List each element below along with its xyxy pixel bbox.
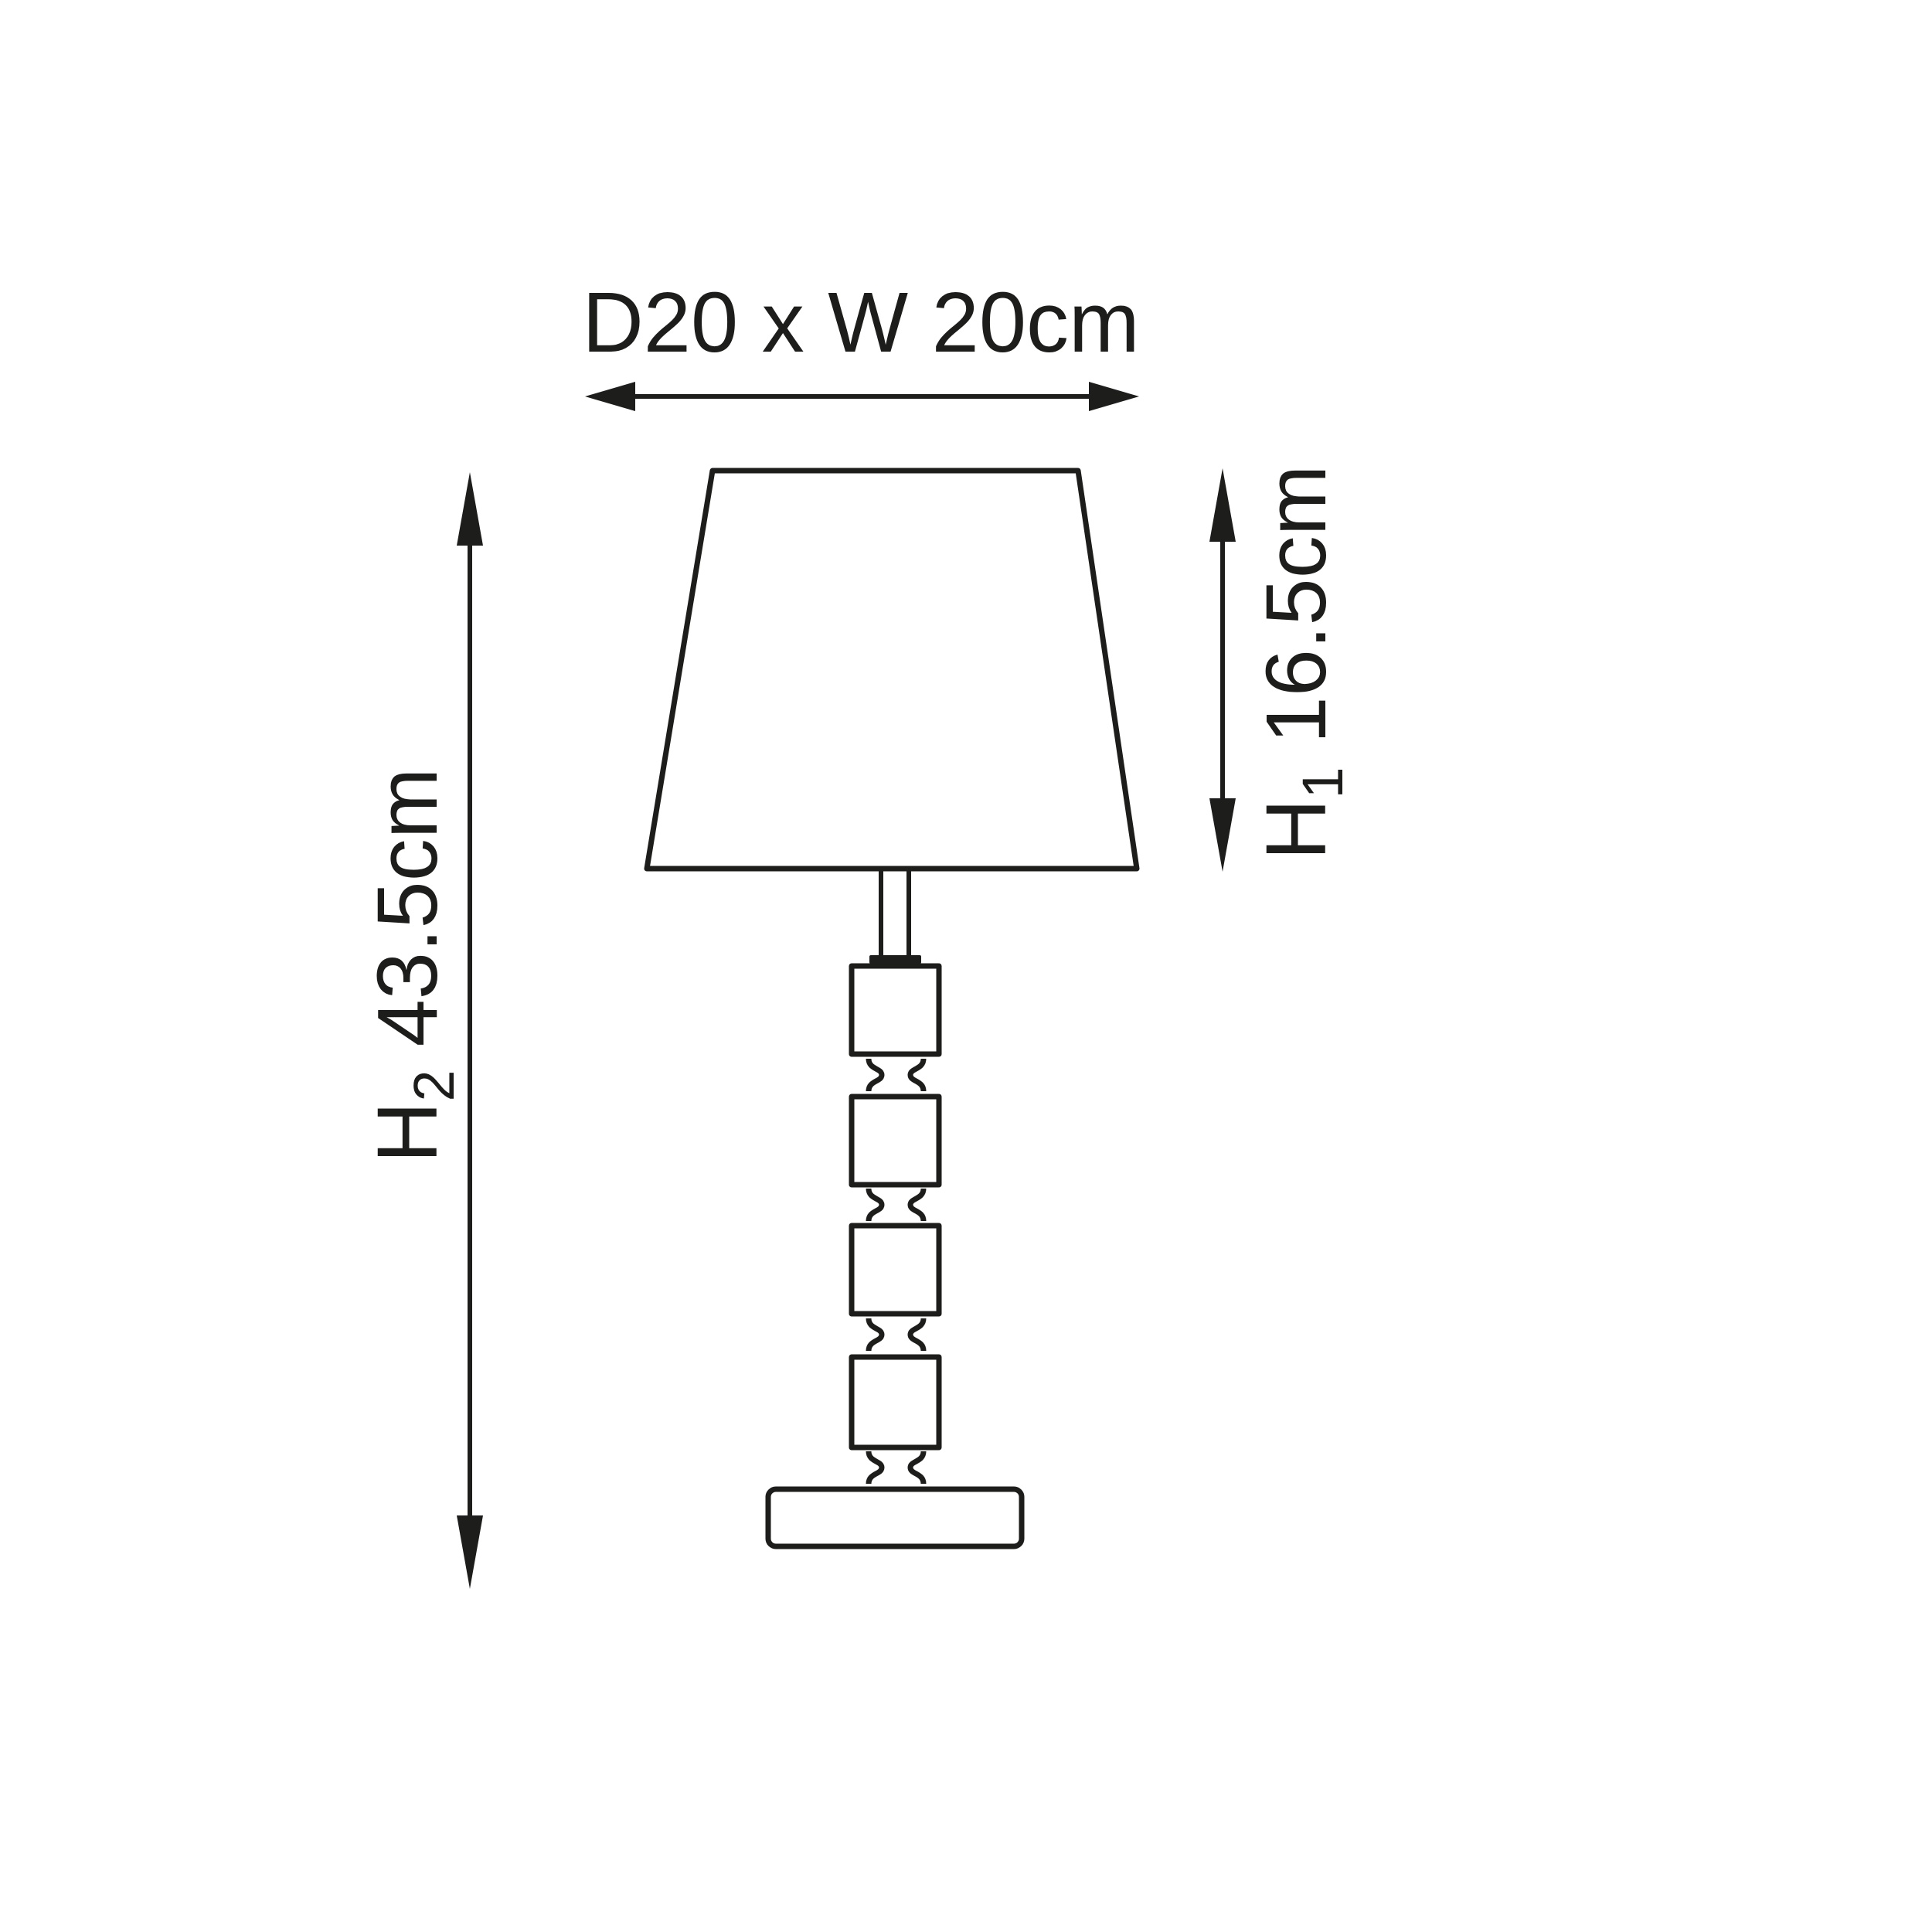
cube-connector-3 [869, 1318, 923, 1351]
cube-connector-2 [869, 1189, 923, 1221]
shade-height-subscript: 1 [1291, 767, 1355, 798]
total-height-label: H243.5cm [360, 768, 466, 1163]
glass-cube-2 [852, 1097, 939, 1185]
arrowhead-up-icon [1209, 468, 1236, 542]
arrowhead-left-icon [585, 382, 635, 411]
arrowhead-down-icon [457, 1515, 483, 1589]
cube-connector-1 [869, 1059, 923, 1091]
arrowhead-right-icon [1089, 382, 1139, 411]
glass-cube-4 [852, 1357, 939, 1447]
base-connector [869, 1451, 923, 1484]
arrowhead-up-icon [457, 472, 483, 546]
shade-height-label: H116.5cm [1249, 465, 1355, 860]
width-dimension: D20 x W 20cm [582, 275, 1139, 411]
total-height-value: 43.5cm [360, 768, 455, 1047]
arrowhead-down-icon [1209, 798, 1236, 872]
total-height-subscript: 2 [402, 1070, 466, 1101]
glass-cube-3 [852, 1226, 939, 1314]
lamp-drawing [647, 471, 1137, 1546]
lamp-stem [881, 871, 909, 958]
shade-height-symbol: H [1249, 799, 1344, 860]
diagram-canvas: D20 x W 20cm [0, 0, 1932, 1932]
shade-height-value: 16.5cm [1249, 465, 1344, 744]
stem-collar [869, 955, 921, 964]
lamp-base [768, 1489, 1022, 1546]
shade-height-dimension: H116.5cm [1209, 465, 1355, 872]
glass-cube-1 [852, 966, 939, 1054]
total-height-dimension: H243.5cm [360, 472, 483, 1589]
lamp-dimension-diagram: D20 x W 20cm [0, 0, 1932, 1932]
width-dimension-label: D20 x W 20cm [582, 275, 1139, 370]
total-height-symbol: H [360, 1102, 455, 1163]
lamp-shade [647, 471, 1137, 869]
